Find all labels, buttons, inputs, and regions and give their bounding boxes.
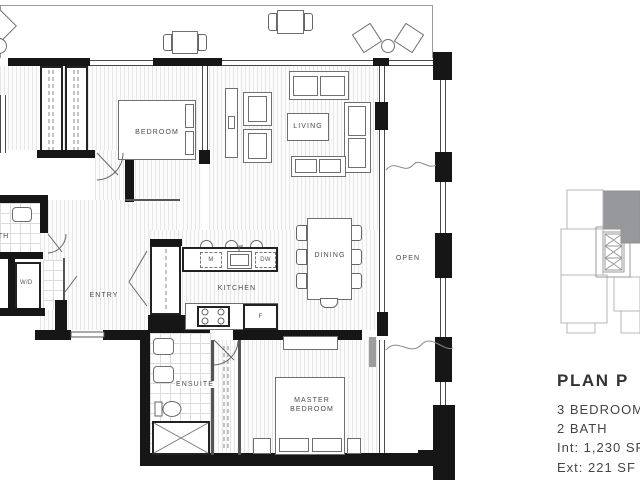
dining-label: DINING (314, 252, 345, 259)
open-label: OPEN (396, 255, 420, 262)
living-label: LIVING (293, 123, 323, 130)
shower-x (154, 423, 208, 453)
keyplan (561, 190, 640, 333)
plan-title: PLAN P (557, 371, 629, 391)
bath-label: BATH (0, 233, 9, 240)
plan-spec-interior-area: Int: 1,230 SF (557, 440, 640, 455)
plan-spec-baths: 2 BATH (557, 421, 608, 436)
floorplan-page: M DW F (0, 0, 640, 480)
door-swings (48, 153, 238, 365)
entry-label: ENTRY (89, 292, 118, 299)
master-bedroom-label: MASTER BEDROOM (281, 396, 343, 414)
ensuite-label: ENSUITE (175, 381, 215, 388)
toilet (155, 402, 181, 417)
washer-dryer-label: W/D (20, 280, 33, 286)
kitchen-label: KITCHEN (218, 285, 256, 292)
sliding-door-dashes (49, 70, 228, 451)
plan-spec-exterior-area: Ext: 221 SF (557, 460, 636, 475)
bedroom-label: BEDROOM (135, 129, 179, 136)
plan-spec-bedrooms: 3 BEDROOM (557, 402, 640, 417)
